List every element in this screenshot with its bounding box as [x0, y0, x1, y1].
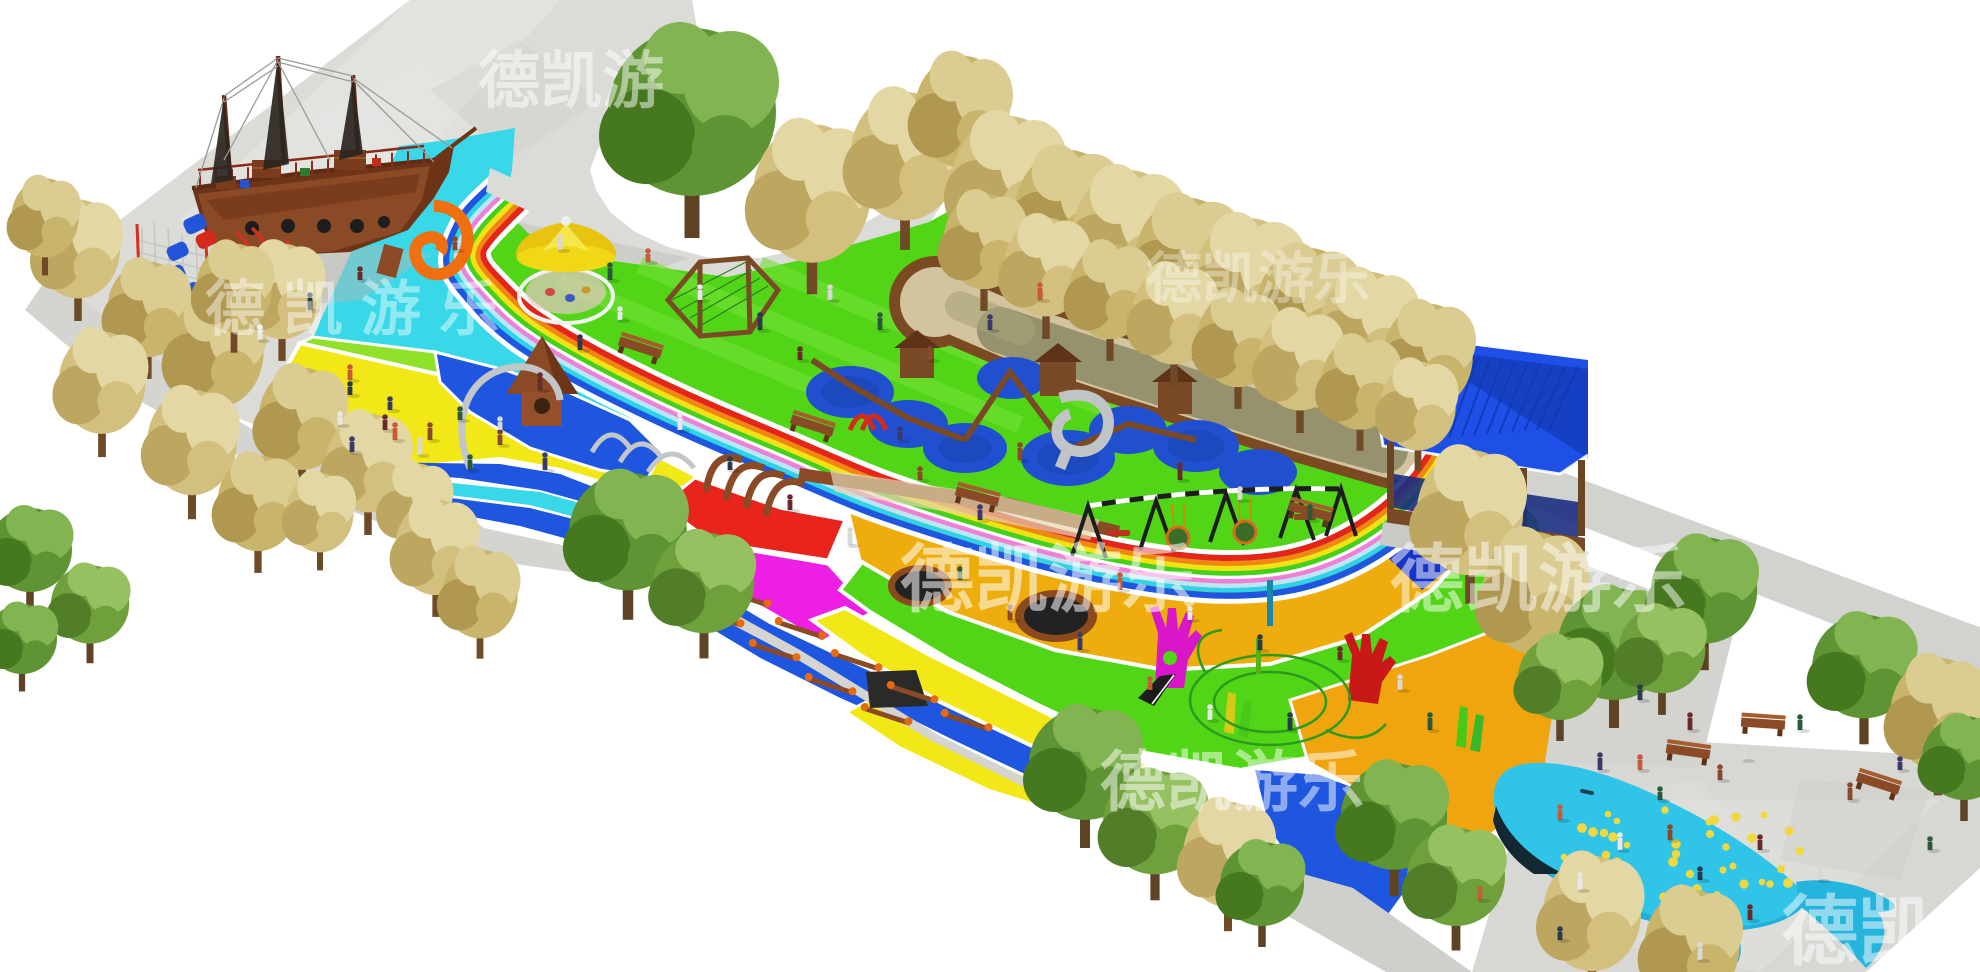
svg-text:德凯游乐: 德凯游乐	[205, 276, 517, 343]
svg-text:德凯: 德凯	[1782, 890, 1934, 972]
svg-text:德凯游乐: 德凯游乐	[1146, 247, 1370, 310]
svg-text:德凯游乐: 德凯游乐	[1100, 745, 1364, 819]
svg-text:德凯游乐: 德凯游乐	[1390, 538, 1686, 621]
svg-text:德凯游: 德凯游	[478, 47, 664, 116]
svg-text:德凯游乐: 德凯游乐	[900, 538, 1196, 621]
